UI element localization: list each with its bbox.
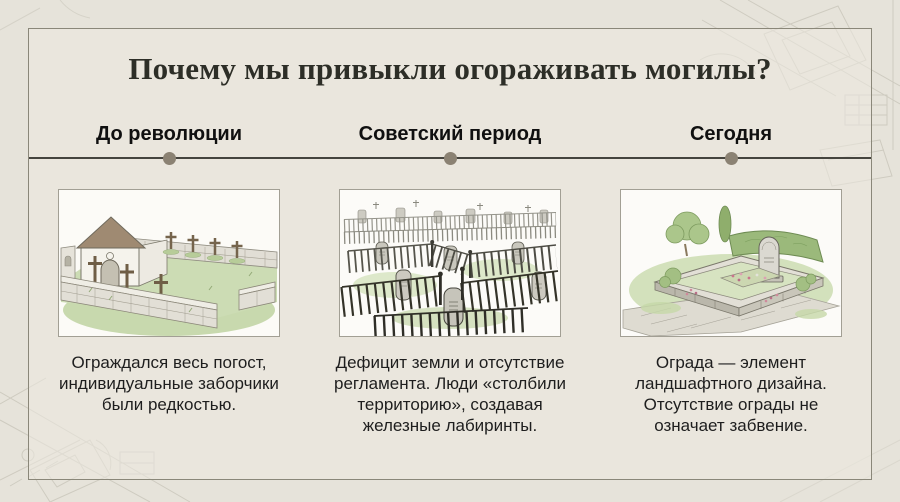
period-label: Советский период xyxy=(359,121,542,147)
blueprint-top-left xyxy=(0,0,90,30)
timeline-dot xyxy=(444,152,457,165)
landscaped-grave-illustration xyxy=(621,190,841,336)
period-caption: Ограда — элемент ландшафтного дизайна. О… xyxy=(635,352,827,436)
period-label: До революции xyxy=(96,121,242,147)
page-title: Почему мы привыкли огораживать могилы? xyxy=(29,51,871,87)
period-label: Сегодня xyxy=(690,121,772,147)
iron-fence-labyrinth-illustration xyxy=(340,190,560,336)
timeline-dot xyxy=(725,152,738,165)
slide-panel: Почему мы привыкли огораживать могилы? Д… xyxy=(28,28,872,480)
walled-churchyard-illustration xyxy=(59,190,279,336)
column-soviet-period: Советский период xyxy=(312,121,588,436)
column-pre-revolution: До революции xyxy=(31,121,307,415)
illustration-frame xyxy=(339,189,561,337)
illustration-frame xyxy=(58,189,280,337)
period-caption: Ограждался весь погост, индивидуальные з… xyxy=(59,352,279,415)
timeline-dot xyxy=(163,152,176,165)
infographic-slide: Почему мы привыкли огораживать могилы? Д… xyxy=(0,0,900,502)
column-today: Сегодня xyxy=(593,121,869,436)
illustration-frame xyxy=(620,189,842,337)
period-caption: Дефицит земли и отсутствие регламента. Л… xyxy=(334,352,566,436)
